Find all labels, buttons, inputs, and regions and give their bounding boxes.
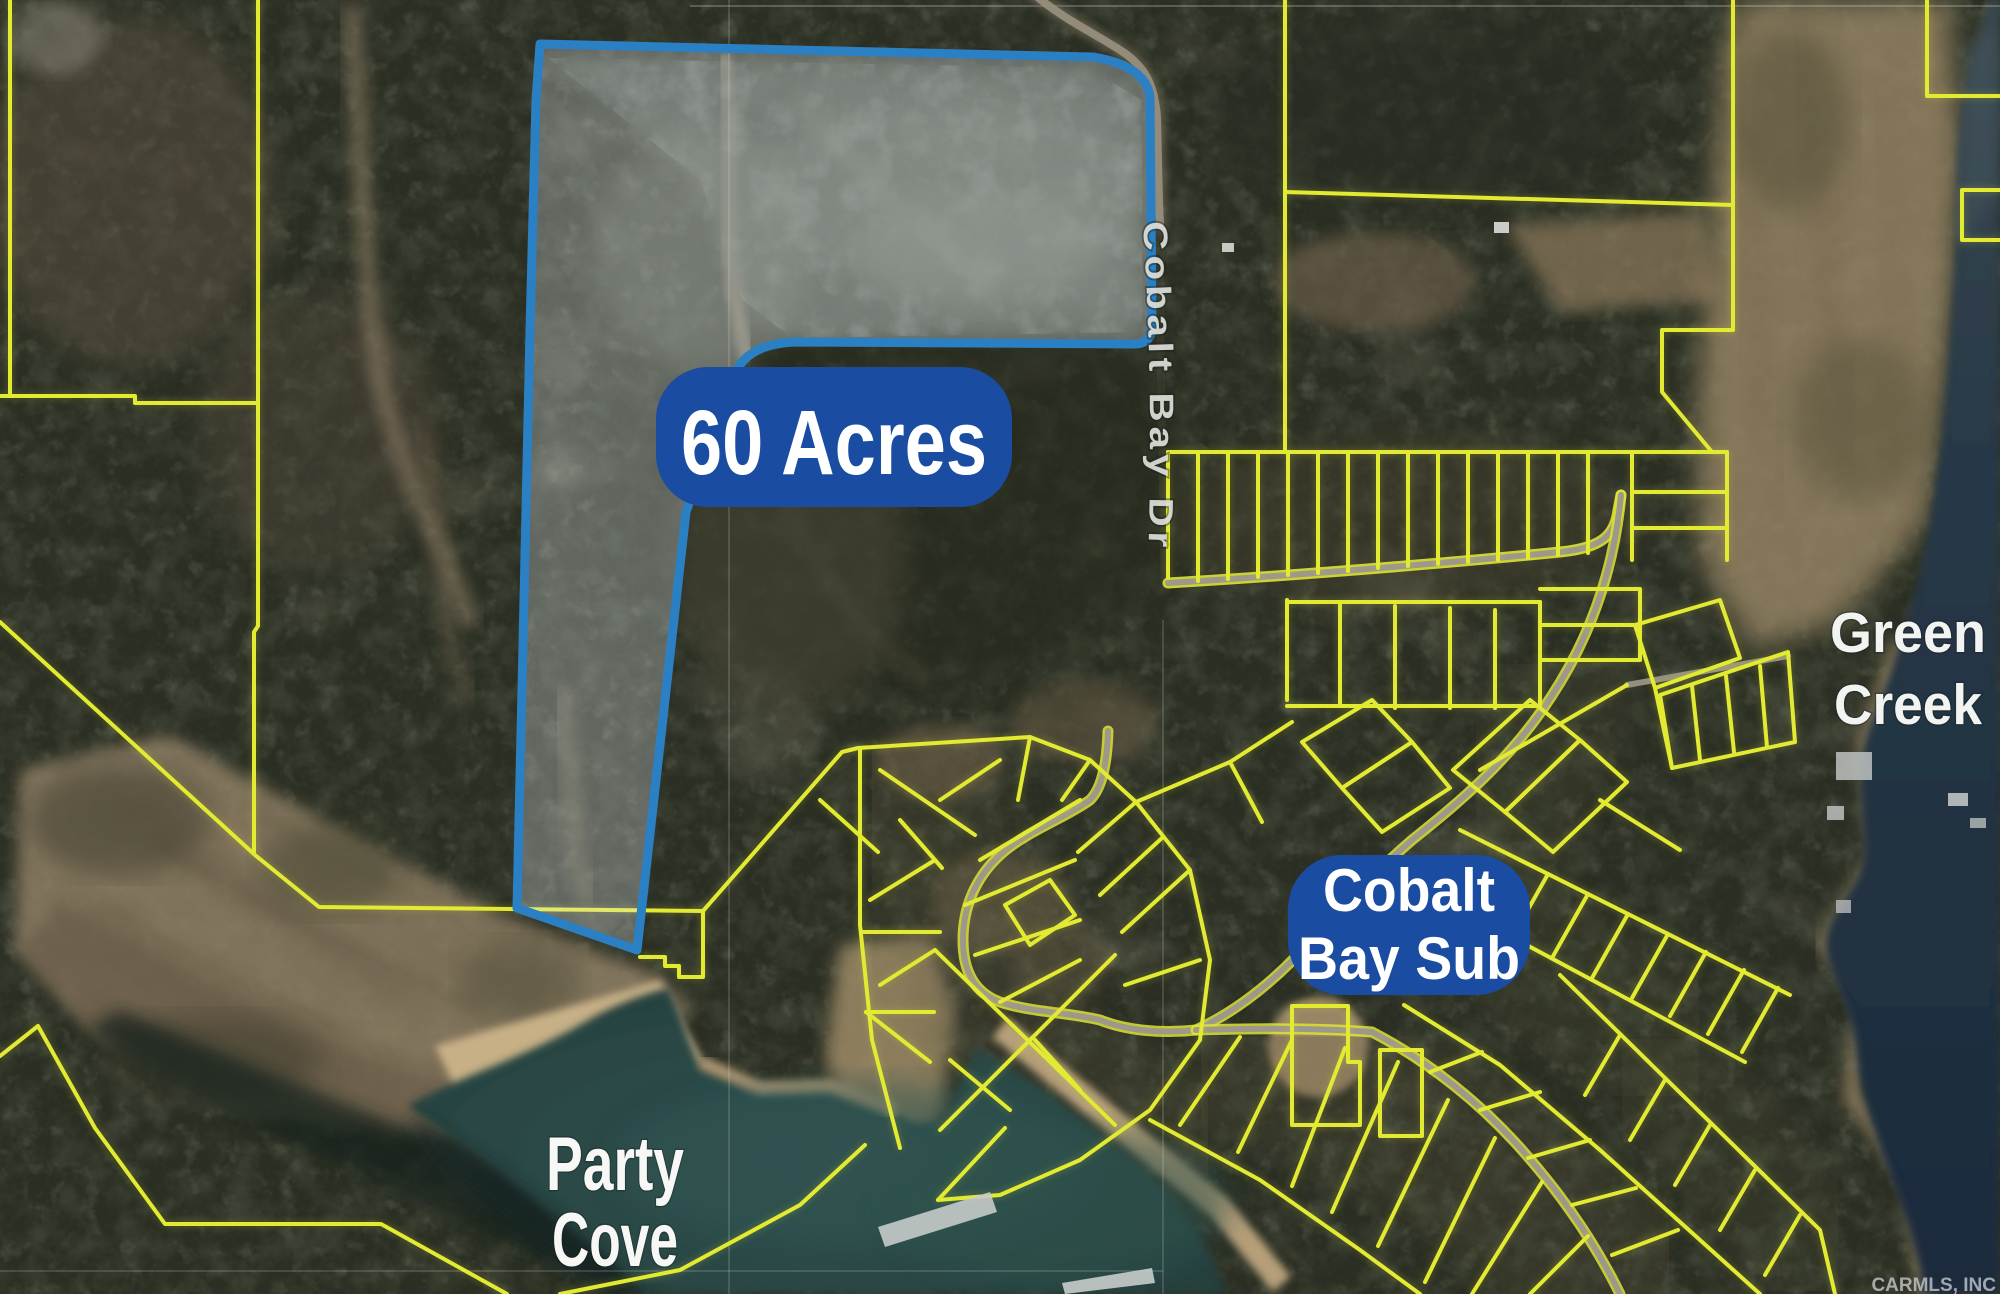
svg-text:Cobalt Bay Dr: Cobalt Bay Dr [1135,220,1180,552]
svg-text:CARMLS, INC: CARMLS, INC [1871,1275,1996,1294]
svg-text:Bay Sub: Bay Sub [1298,925,1520,992]
svg-text:Cove: Cove [552,1198,678,1283]
svg-text:Party: Party [546,1122,684,1207]
svg-text:60 Acres: 60 Acres [681,392,987,494]
svg-text:Green: Green [1830,601,1986,665]
svg-text:Cobalt: Cobalt [1323,857,1495,924]
svg-text:Creek: Creek [1834,673,1982,737]
